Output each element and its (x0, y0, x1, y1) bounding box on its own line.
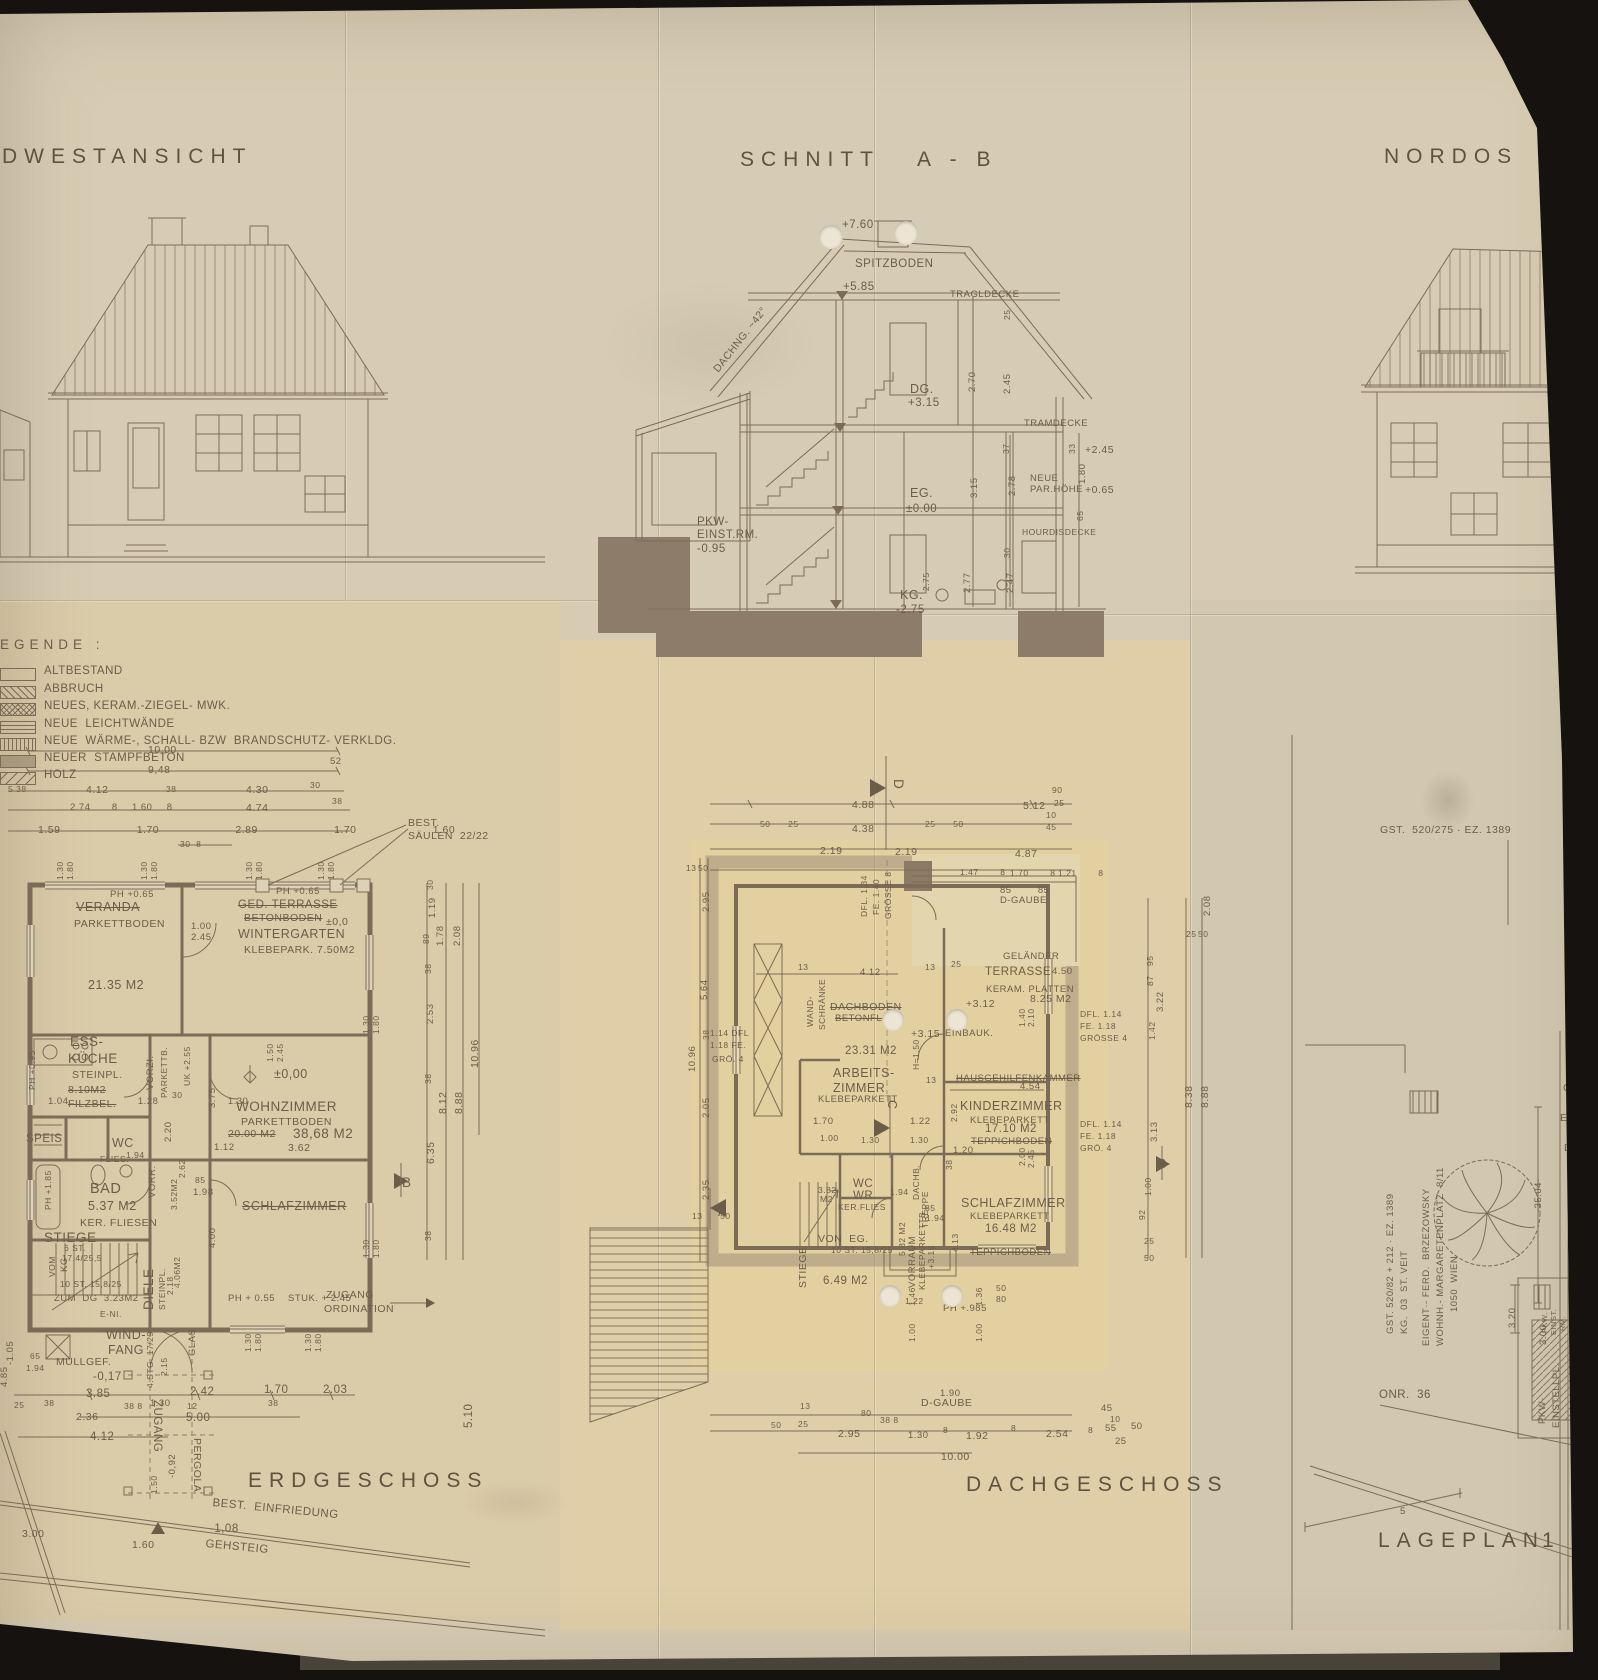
room-label: WOHNZIMMER (236, 1100, 337, 1114)
parcel-label: KG. 03 ST. VEIT (1400, 1251, 1410, 1334)
note-label: DFL. 1.14 (1080, 1010, 1122, 1019)
dim-label: 13 (800, 1402, 810, 1411)
dim-label: 25 50 (925, 820, 964, 829)
hole-punch (941, 1285, 963, 1307)
legend-item: HOLZ (44, 770, 77, 782)
dim-label: 2.45 (191, 933, 212, 943)
note-label: FE. 1.18 (1080, 1022, 1116, 1031)
dim-label: 52 (330, 757, 342, 767)
dim-label: 2.95 (838, 1429, 860, 1440)
dim-label: 2.77 (963, 573, 973, 594)
view-title-section: SCHNITT A - B (740, 149, 997, 170)
dim-label: 1.80 (327, 861, 336, 880)
level-label: +2.45 (1085, 445, 1114, 456)
area-label: 8.25 M2 (1030, 994, 1071, 1005)
dim-label: 4.12 (90, 1432, 114, 1444)
scanner-background: DWESTANSICHT SCHNITT A - B NORDOS ERDGES… (0, 0, 1598, 1680)
dim-label: 2.42 (190, 1387, 214, 1399)
dim-label: 8 (1088, 1426, 1093, 1435)
room-label: KINDERZIMMER (960, 1100, 1063, 1113)
note-label: SCHRÄNKE (818, 979, 827, 1030)
level-label: +3.15 (927, 1245, 936, 1269)
dim-label: 10 (1110, 1415, 1120, 1424)
dim-label: 3.75 (208, 1088, 218, 1109)
room-label: TERRASSE (985, 967, 1051, 979)
dim-label: 33 (1068, 444, 1077, 454)
legend-item: NEUE LEICHTWÄNDE (44, 719, 175, 731)
room-label: RM. (1559, 1316, 1567, 1331)
dim-label: 1.70 (813, 1117, 834, 1127)
dim-label: 30 (310, 781, 320, 790)
dim-label: 1.30 (304, 1333, 313, 1352)
hole-punch (946, 1009, 968, 1031)
room-label: BETONBODEN (244, 913, 322, 924)
dim-label: 4.85 (0, 1367, 10, 1388)
dim-label: 25 (1115, 1437, 1127, 1447)
note-label: WAND- (806, 996, 815, 1027)
dim-label: 25 (14, 1401, 24, 1410)
room-label: EINSTELLPL. (1552, 1363, 1562, 1428)
dim-label: 38 (268, 1399, 278, 1408)
level-label: PH + 0.55 (228, 1294, 275, 1304)
dim-label: 3.85 (86, 1389, 110, 1401)
room-label: VORZI. (146, 1055, 156, 1090)
level-label: PH +0.65 (110, 890, 154, 900)
room-label: WIND- (106, 1329, 146, 1342)
room-label: FANG (108, 1344, 144, 1357)
dim-label: 1.19 (428, 898, 438, 919)
hole-punch (879, 1285, 901, 1307)
dim-label: 1.94 (26, 1364, 45, 1373)
room-label: KG. (900, 589, 923, 602)
dim-label: 45 (1101, 1404, 1113, 1414)
area-label: 8.10M2 (68, 1085, 106, 1096)
dim-label: 2.78 (1008, 476, 1018, 497)
note-label: GRÖ. 4 (712, 1055, 744, 1064)
note-label: ZUM DG 3.23M2 (54, 1294, 139, 1304)
area-label: 20.00 M2 (228, 1129, 276, 1140)
dim-label: 87 (1146, 976, 1155, 986)
dim-label: 1.70 8 (1010, 869, 1056, 878)
attic-floor-plan-drawing (560, 730, 1205, 1490)
dim-label: 2.74 8 1.60 8 (70, 803, 173, 813)
room-label: EINST.RM. (697, 530, 758, 542)
dim-label: 30 (1003, 548, 1012, 558)
room-label: PKW- (1538, 1397, 1548, 1424)
dim-label: 10.96 (688, 1046, 698, 1072)
dim-label: 25 (1003, 310, 1012, 320)
dim-label: 4.88 (852, 800, 874, 811)
dim-label: 5.12 (1023, 801, 1045, 812)
dim-label: 2.03 (323, 1385, 347, 1397)
dim-label: 65 (1076, 511, 1085, 521)
dim-label: 2.36 (76, 1412, 98, 1423)
parcel-label: ONR. 36 (1379, 1390, 1431, 1402)
legend-swatch-ziegel (0, 703, 36, 716)
note-label: 1.18 FE. (710, 1041, 746, 1050)
dim-label: 1.12 (214, 1143, 235, 1153)
dim-label: 1.21 8 (1058, 869, 1104, 878)
level-label: +5.85 (843, 282, 875, 294)
dim-label: 30 (172, 1091, 182, 1100)
edge-text-fragment: DZ (1564, 1143, 1579, 1154)
section-marker-label: B (402, 1176, 412, 1190)
note-label: TRAGLDECKE (950, 290, 1019, 300)
dim-label: 38 (945, 1160, 954, 1170)
dim-label: 4.54 (1020, 1082, 1041, 1092)
plan-title-lageplan: LAGEPLAN (1378, 1530, 1545, 1551)
dim-label: 1.80 (314, 1333, 323, 1352)
level-label: +0.65 (1085, 485, 1114, 496)
dim-label: 13 (798, 963, 808, 972)
dim-label: 8 (1011, 1424, 1016, 1433)
dim-label: 4.12 (86, 785, 108, 796)
dim-label: 1.80 (254, 1333, 263, 1352)
dim-label: 1.00 1.46 (908, 1287, 917, 1342)
hole-punch (894, 221, 918, 245)
dim-label: 5 38 (8, 785, 27, 794)
dim-label: 8.12 (438, 1092, 449, 1114)
dim-label: 2.53 (426, 1004, 436, 1025)
level-label: PH +1.85 (44, 1170, 53, 1210)
room-label: ZIMMER (833, 1082, 885, 1095)
dim-label: 2.62 (178, 1159, 187, 1178)
dim-label: 6.35 (426, 1142, 437, 1164)
dim-label: 2.20 (164, 1122, 174, 1143)
dim-label: 2.47 (1006, 573, 1016, 594)
dim-label: 85 (195, 1176, 205, 1185)
room-label: ESS- (70, 1035, 104, 1049)
dim-label: 1.00 (1144, 1177, 1153, 1196)
room-label: VORR. (148, 1165, 158, 1198)
room-label: TEPPICHBODEN (970, 1248, 1051, 1258)
room-label: FLIES. (100, 1155, 129, 1164)
room-label: VERANDA (76, 901, 140, 914)
dim-label: 10.00 (941, 1452, 970, 1463)
note-label: 10 ST. 15,8/25 (831, 1246, 893, 1255)
edge-text-fragment: GS (1563, 1083, 1579, 1094)
room-label: KER.FLIES (838, 1203, 886, 1212)
dim-label: 12 (187, 1402, 197, 1411)
note-label: EINBAUK. (945, 1029, 993, 1039)
level-label: +7.60 (842, 220, 874, 232)
dim-label: 2.10 (1027, 1008, 1036, 1027)
legend-swatch-leichtwaende (0, 721, 36, 734)
note-label: ZUGANG (151, 1400, 163, 1452)
owner-label: 1050 WIEN (1450, 1256, 1460, 1312)
note-label: BEST. (408, 818, 440, 829)
dim-label: 10.96 (470, 1039, 481, 1068)
lageplan-scale: 1 · (1542, 1530, 1588, 1551)
dim-label: 5.10 (464, 1404, 476, 1428)
dim-label: 95 (1146, 956, 1155, 966)
dim-label: 4.50 (1052, 967, 1073, 977)
dim-label: 1.22 (910, 1117, 931, 1127)
dim-label: 1.94 (926, 1214, 945, 1223)
dim-label: 2.45 (1027, 1149, 1036, 1168)
dim-label: 1.92 (966, 1431, 988, 1442)
legend-swatch-verkleidung (0, 738, 36, 751)
dim-label: 1.30 (56, 861, 65, 880)
dim-label: 25 (1054, 799, 1064, 808)
dim-label: 4.74 (246, 803, 268, 814)
note-label: SÄULEN 22/22 (408, 831, 489, 842)
dim-label: 50 (1198, 930, 1208, 939)
area-label: 6.49 M2 (823, 1276, 868, 1288)
dim-label: 5.00 (186, 1413, 210, 1425)
room-label: PKW. (1541, 1312, 1549, 1333)
room-label: PARKETTBODEN (74, 919, 165, 930)
room-label: SPITZBODEN (855, 259, 933, 271)
dim-label: 25 (798, 1420, 808, 1429)
dim-label: 4.12 (860, 968, 881, 978)
area-label: 16.48 M2 (985, 1224, 1037, 1236)
dim-label: 4.38 (852, 824, 874, 835)
dim-label: 1.80 (150, 861, 159, 880)
area-label: 4.06M2 (173, 1257, 182, 1288)
dim-label: 4.87 (1015, 849, 1037, 860)
area-label: 5.37 M2 (88, 1200, 137, 1213)
dim-label: 1.30 (317, 861, 326, 880)
dim-label: 50 (1131, 1422, 1143, 1432)
room-label: PARKETTB. (160, 1047, 169, 1098)
dim-label: 1.98 (193, 1188, 214, 1198)
dim-label: 1.60 (132, 1540, 154, 1551)
blueprint-sheet: DWESTANSICHT SCHNITT A - B NORDOS ERDGES… (0, 0, 1598, 1680)
dim-label: 2.35 (702, 1180, 712, 1201)
dim-label: 1.50 (150, 1475, 159, 1494)
dim-label: 1.47 8 (960, 868, 1006, 877)
note-label: GELÄNDER (1003, 952, 1059, 962)
section-marker-label: A (718, 1206, 727, 1219)
level-label: UK +2.55 (183, 1046, 192, 1086)
dim-label: 8.88 (454, 1092, 465, 1114)
note-label: PAR.HÖHE (1030, 485, 1083, 495)
room-label: WINTERGARTEN (238, 928, 345, 941)
dim-label: 92 (1138, 1210, 1147, 1220)
legend-item: NEUES, KERAM.-ZIEGEL- MWK. (44, 701, 230, 713)
dim-label: 38 (424, 1074, 433, 1084)
room-label: WC (853, 1179, 873, 1191)
dim-label: 38 8 (880, 1416, 899, 1425)
dim-label: 1.42 (1148, 1021, 1157, 1040)
dim-label: 1.30 (140, 861, 149, 880)
note-label: D-GAUBE (921, 1398, 972, 1409)
dim-label: 25 (951, 960, 961, 969)
dim-label: 55 (1105, 1424, 1117, 1434)
edge-text-fragment: D (1573, 1158, 1581, 1169)
dim-label: 8 (943, 1426, 948, 1435)
dim-label: 37 (1002, 444, 1011, 454)
hole-punch (882, 1009, 904, 1031)
room-label: TEPPICHBODEN (971, 1137, 1052, 1147)
plan-title-erdgeschoss: ERDGESCHOSS (248, 1470, 488, 1491)
dim-label: 1.80 (66, 861, 75, 880)
plan-title-dachgeschoss: DACHGESCHOSS (966, 1474, 1229, 1495)
dim-label: 2.54 (1046, 1429, 1068, 1440)
dim-label: 13 (925, 963, 935, 972)
dim-label: 1.94 (890, 1188, 909, 1197)
note-label: NEUE (1030, 474, 1058, 484)
room-label: SCHLAFZIMMER (242, 1200, 347, 1213)
dim-label: 1.78 (436, 926, 446, 947)
dim-label: 3.13 (1150, 1122, 1160, 1143)
edge-text-fragment: D (1570, 1128, 1578, 1139)
level-label: PH +0.95 (28, 1050, 37, 1090)
dim-label: 1.30 (244, 1333, 253, 1352)
dim-label: 10,00 (148, 745, 177, 756)
dim-label: 65 (30, 1352, 40, 1361)
room-label: KLEBEPARK. 7.50M2 (244, 945, 355, 956)
dim-label: 8.38 (1184, 1086, 1195, 1108)
level-label: -0,17 (93, 1372, 122, 1384)
section-marker-label: C (886, 1100, 899, 1110)
dim-label: 2.19 (895, 847, 917, 858)
dim-label: -35.04- (1534, 1178, 1544, 1212)
area-label: 17.10 M2 (985, 1124, 1037, 1136)
dim-label: 30 8 (180, 840, 201, 849)
room-label: DIELE (142, 1268, 156, 1310)
note-label: PERGOLA (192, 1438, 203, 1492)
level-label: ±0,0 (326, 917, 348, 928)
room-label: STIEGE (798, 1246, 809, 1288)
note-label: 4.STG. 17/29 (146, 1331, 155, 1388)
level-label: STUK. + 2.45 (288, 1294, 351, 1304)
level-label: -0,92 (168, 1454, 178, 1478)
dim-label: 1.30 (362, 1015, 371, 1034)
edge-text-fragment: EIG (1560, 1113, 1580, 1124)
dim-label: 45 (1046, 823, 1056, 832)
legend-swatch-abbruch (0, 686, 36, 699)
dim-label: 50 25 (760, 820, 799, 829)
dim-label: 38 (332, 797, 342, 806)
dim-label: 2.15 (160, 1357, 169, 1376)
room-label: GED. TERRASSE (238, 900, 338, 912)
room-label: ARBEITS- (833, 1067, 895, 1080)
dim-label: 1.30 (245, 861, 254, 880)
dim-label: 5.64 (700, 980, 710, 1001)
dim-label: 9,48 (148, 765, 170, 776)
hole-punch (819, 225, 843, 249)
note-label: HOURDISDECKE (1022, 528, 1096, 537)
room-label: KLEBEPARKETT (970, 1212, 1050, 1222)
room-label: KÜCHE (68, 1052, 118, 1066)
dim-label: 3.15 (970, 478, 980, 499)
dim-label: 80 (861, 1409, 871, 1418)
area-label: 38,68 M2 (293, 1127, 353, 1141)
area-label: 21.35 M2 (88, 979, 144, 992)
room-label: KER. FLIESEN (80, 1218, 157, 1229)
dim-label: 2.70 (968, 372, 978, 393)
dim-label: 3.20 (1508, 1308, 1518, 1329)
dim-label: 2.05 (702, 1098, 712, 1119)
dim-label: 1.04 1.28 1.30 (48, 1097, 248, 1107)
area-label: 3.52M2 (170, 1179, 179, 1210)
dim-label: 2.45 (276, 1043, 285, 1062)
dim-label: 1.70 (264, 1385, 288, 1397)
note-label: E-NI. (100, 1310, 122, 1319)
note-label: 10 ST. 15,8/25 (60, 1280, 122, 1289)
level-label: -0.95 (697, 544, 726, 556)
room-label: WR (853, 1191, 873, 1203)
room-label: PKW- (697, 517, 729, 529)
dim-label: 1.00 1.36 (975, 1287, 984, 1342)
dim-label: 50 (771, 1421, 781, 1430)
dim-label: 2.19 (820, 846, 842, 857)
dim-label: 1.00 (820, 1134, 839, 1143)
dim-label: H=1.50 (912, 1039, 921, 1070)
area-label: 23.31 M2 (845, 1046, 897, 1058)
note-label: 17,4/25,5 (62, 1254, 102, 1263)
dim-label: 2.92 (950, 1103, 959, 1122)
note-label: DFL. 1.14 (1080, 1120, 1122, 1129)
dim-label: 13 (686, 864, 696, 873)
dim-label: 38 (424, 964, 433, 974)
level-label: ±0.00 (906, 504, 937, 516)
view-title-southwest: DWESTANSICHT (2, 146, 252, 167)
room-label: SCHLAFZIMMER (961, 1197, 1066, 1210)
dim-label: 50 (1144, 1254, 1154, 1263)
level-label: PH +0.65 (276, 887, 320, 897)
note-label: GLAS (188, 1329, 198, 1356)
legend-heading: EGENDE : (0, 638, 105, 652)
edge-text-fragment: EZ (1566, 1098, 1580, 1109)
room-label: BAD (90, 1182, 121, 1197)
level-label: -1,08 (210, 1524, 239, 1536)
legend-item: ALTBESTAND (44, 666, 123, 678)
dim-label: 1.80 (372, 1015, 381, 1034)
dim-label: 8.88 (1200, 1086, 1211, 1108)
dim-label: 1.59 1.70 2.89 1.70 1.60 (38, 825, 455, 836)
note-label: 6 ST. (64, 1244, 86, 1253)
owner-label: WOHNH.- MARGARETENPLATZ 8/11 (1436, 1167, 1446, 1346)
dim-label: 38 8 (124, 1402, 143, 1411)
note-label: GRÖSSE 8 (884, 872, 893, 919)
dim-label: 2.08 (1203, 896, 1213, 917)
dim-label: 38 (44, 1399, 54, 1408)
room-label: HAUSGEHILFENKAMMER (956, 1074, 1081, 1084)
note-label: VON EG. (818, 1234, 869, 1245)
dim-label: 50 (996, 1284, 1006, 1293)
note-label: ORDINATION (324, 1304, 394, 1315)
dim-label: 1.80 (372, 1239, 381, 1258)
section-marker-label: B (1158, 1158, 1167, 1171)
room-label: EINST. (1550, 1309, 1558, 1335)
dim-label: 10 (1046, 811, 1056, 820)
note-label: FE. 1.18 (1080, 1132, 1116, 1141)
parcel-label: GST. 520/275 · EZ. 1389 (1380, 825, 1511, 836)
note-label: 1.14 DFL (710, 1029, 749, 1038)
dim-label: 5 (1400, 1507, 1406, 1517)
note-label: D-GAUBE (1000, 896, 1047, 906)
level-label: +3.15 (908, 398, 940, 410)
note-label: FE. 1.40 (872, 879, 881, 915)
dim-label: 2.08 (453, 926, 463, 947)
note-label: MÜLLGEF. (56, 1357, 111, 1368)
southwest-elevation-drawing (0, 210, 545, 580)
parcel-label: GST. 520/82 + 212 · EZ. 1389 (1386, 1194, 1396, 1334)
note-label: GRÖSSE 4 (1080, 1034, 1127, 1043)
room-label: DG. (910, 383, 934, 396)
owner-label: EIGENT·- FERD. BRZEZOWSKY (1422, 1188, 1432, 1346)
dim-label: 3.62 (288, 1143, 310, 1154)
area-label: M2 (820, 1195, 833, 1204)
section-marker-label: D (892, 779, 906, 789)
legend-item: NEUE WÄRME-, SCHALL- BZW BRANDSCHUTZ- VE… (44, 736, 396, 748)
note-label: DFL. 1.34 (860, 875, 869, 917)
section-a-b-drawing (590, 205, 1145, 675)
ground-floor-plan-drawing (0, 735, 545, 1635)
